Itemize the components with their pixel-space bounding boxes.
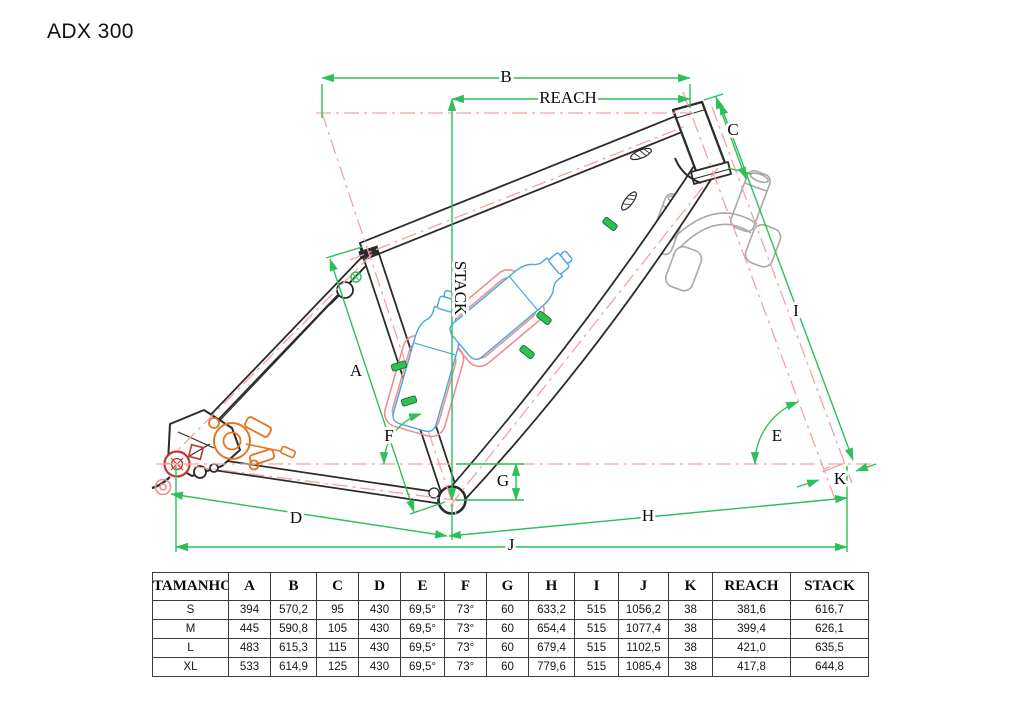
table-cell: 38: [669, 601, 713, 620]
table-cell: 73°: [445, 639, 487, 658]
table-header-cell: STACK: [791, 573, 869, 601]
table-cell: 421,0: [713, 639, 791, 658]
table-cell: 394: [229, 601, 271, 620]
label-H: H: [642, 506, 654, 525]
table-header-cell: TAMANHO: [153, 573, 229, 601]
table-cell: 60: [487, 601, 529, 620]
table-cell: 615,3: [271, 639, 317, 658]
table-cell: 69,5°: [401, 658, 445, 677]
geometry-table-header: TAMANHOABCDEFGHIJKREACHSTACK: [153, 573, 869, 601]
table-header-cell: J: [619, 573, 669, 601]
label-D: D: [290, 508, 302, 527]
table-cell: 38: [669, 658, 713, 677]
table-cell: 60: [487, 658, 529, 677]
table-cell: 570,2: [271, 601, 317, 620]
table-cell: 1056,2: [619, 601, 669, 620]
table-cell: 430: [359, 658, 401, 677]
table-header-cell: H: [529, 573, 575, 601]
top-tube: [360, 116, 682, 259]
table-cell: 633,2: [529, 601, 575, 620]
seat-clamp-qr: [337, 282, 353, 298]
table-cell: 73°: [445, 620, 487, 639]
table-cell: 533: [229, 658, 271, 677]
table-cell: 590,8: [271, 620, 317, 639]
table-cell: 1102,5: [619, 639, 669, 658]
table-header-cell: D: [359, 573, 401, 601]
page: ADX 300: [0, 0, 1024, 726]
table-cell: 60: [487, 639, 529, 658]
table-cell: 73°: [445, 601, 487, 620]
table-cell: 399,4: [713, 620, 791, 639]
table-cell: 616,7: [791, 601, 869, 620]
table-header-cell: E: [401, 573, 445, 601]
geometry-table-container: TAMANHOABCDEFGHIJKREACHSTACK S394570,295…: [152, 572, 869, 677]
table-cell: 69,5°: [401, 601, 445, 620]
table-cell: 73°: [445, 658, 487, 677]
cable-port: [619, 190, 639, 212]
table-cell: 626,1: [791, 620, 869, 639]
label-C: C: [727, 120, 738, 139]
table-cell: 1085,4: [619, 658, 669, 677]
table-cell: 515: [575, 639, 619, 658]
table-cell: 38: [669, 620, 713, 639]
table-row: S394570,29543069,5°73°60633,25151056,238…: [153, 601, 869, 620]
table-cell: 417,8: [713, 658, 791, 677]
table-cell: 483: [229, 639, 271, 658]
table-cell: 38: [669, 639, 713, 658]
table-cell: 1077,4: [619, 620, 669, 639]
label-F: F: [384, 426, 393, 445]
label-J: J: [508, 535, 515, 554]
label-G: G: [497, 471, 509, 490]
table-cell: 69,5°: [401, 620, 445, 639]
table-cell: 679,4: [529, 639, 575, 658]
table-cell: 654,4: [529, 620, 575, 639]
table-cell: 515: [575, 658, 619, 677]
table-header-cell: K: [669, 573, 713, 601]
table-header-cell: B: [271, 573, 317, 601]
chain-stay: [189, 456, 447, 505]
rear-dropout-cluster: [152, 410, 296, 495]
table-header-cell: G: [487, 573, 529, 601]
table-cell: L: [153, 639, 229, 658]
label-A: A: [350, 361, 363, 380]
table-cell: 105: [317, 620, 359, 639]
table-cell: 635,5: [791, 639, 869, 658]
geometry-table: TAMANHOABCDEFGHIJKREACHSTACK S394570,295…: [152, 572, 869, 677]
table-cell: 60: [487, 620, 529, 639]
table-row: M445590,810543069,5°73°60654,45151077,43…: [153, 620, 869, 639]
table-cell: 644,8: [791, 658, 869, 677]
table-header-cell: REACH: [713, 573, 791, 601]
table-cell: 515: [575, 601, 619, 620]
table-cell: 614,9: [271, 658, 317, 677]
table-cell: 69,5°: [401, 639, 445, 658]
label-I: I: [793, 301, 799, 320]
dimension-labels: B REACH C STACK A F G D H J I E K: [290, 67, 847, 554]
label-STACK: STACK: [451, 261, 470, 316]
table-cell: 515: [575, 620, 619, 639]
table-header-cell: C: [317, 573, 359, 601]
table-cell: 430: [359, 620, 401, 639]
table-cell: 115: [317, 639, 359, 658]
label-E: E: [772, 426, 782, 445]
table-cell: 125: [317, 658, 359, 677]
table-cell: 95: [317, 601, 359, 620]
table-cell: 430: [359, 639, 401, 658]
table-header-cell: I: [575, 573, 619, 601]
table-cell: XL: [153, 658, 229, 677]
label-REACH: REACH: [539, 88, 597, 107]
table-cell: S: [153, 601, 229, 620]
table-cell: 430: [359, 601, 401, 620]
table-cell: M: [153, 620, 229, 639]
table-cell: 445: [229, 620, 271, 639]
table-cell: 779,6: [529, 658, 575, 677]
table-row: XL533614,912543069,5°73°60779,65151085,4…: [153, 658, 869, 677]
table-cell: 381,6: [713, 601, 791, 620]
table-header-cell: A: [229, 573, 271, 601]
label-K: K: [834, 469, 847, 488]
water-bottles: [391, 238, 583, 433]
table-header-cell: F: [445, 573, 487, 601]
label-B: B: [500, 67, 511, 86]
table-row: L483615,311543069,5°73°60679,45151102,53…: [153, 639, 869, 658]
